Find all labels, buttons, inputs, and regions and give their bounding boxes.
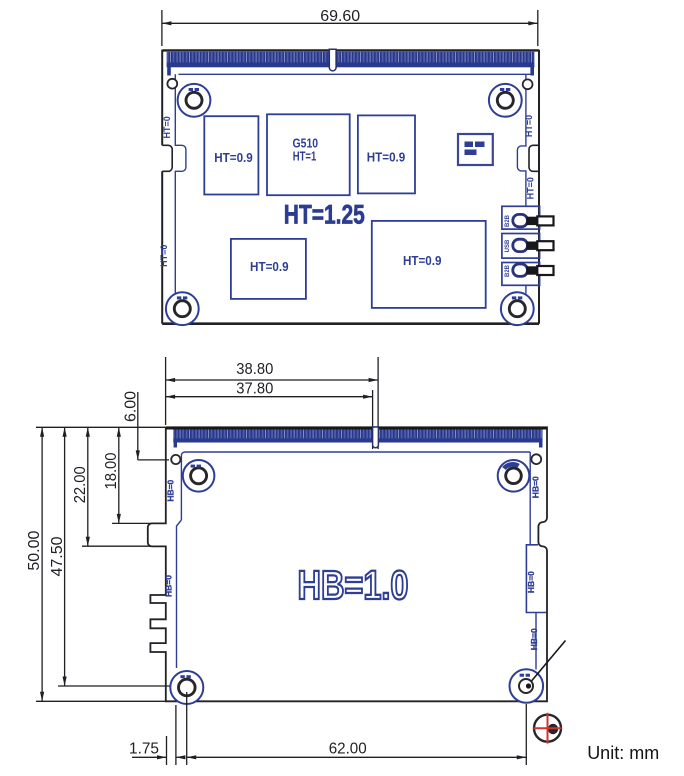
svg-text:18.00: 18.00 [103, 452, 120, 489]
svg-text:1.75: 1.75 [129, 741, 159, 758]
svg-text:HT=1: HT=1 [293, 148, 317, 163]
svg-text:HT=0.9: HT=0.9 [214, 150, 253, 165]
svg-text:B2B: B2B [505, 214, 511, 227]
svg-text:HB=0: HB=0 [531, 476, 541, 498]
svg-text:USB: USB [505, 239, 511, 252]
svg-text:HT=0.9: HT=0.9 [250, 259, 289, 274]
svg-text:47.50: 47.50 [49, 536, 66, 576]
svg-text:HT=0.9: HT=0.9 [403, 253, 442, 268]
svg-text:50.00: 50.00 [26, 531, 43, 571]
svg-text:HB=1.0: HB=1.0 [298, 562, 409, 608]
svg-text:Unit: mm: Unit: mm [587, 743, 659, 763]
svg-text:37.80: 37.80 [236, 381, 273, 398]
svg-text:HB=0: HB=0 [529, 628, 539, 650]
svg-text:HT=0.9: HT=0.9 [367, 150, 406, 165]
svg-text:HT=0: HT=0 [162, 116, 172, 138]
svg-text:B2B: B2B [505, 264, 511, 277]
svg-text:69.60: 69.60 [320, 8, 360, 25]
svg-text:HT=0: HT=0 [525, 177, 535, 199]
svg-text:HB=0: HB=0 [164, 575, 174, 597]
svg-text:HT=0: HT=0 [159, 245, 169, 267]
svg-text:HT=1.25: HT=1.25 [284, 199, 365, 229]
svg-text:62.00: 62.00 [329, 741, 367, 758]
svg-text:HB=0: HB=0 [526, 571, 536, 593]
svg-text:6.00: 6.00 [123, 391, 140, 422]
svg-text:HT=0: HT=0 [524, 115, 534, 137]
svg-text:22.00: 22.00 [72, 466, 89, 503]
svg-text:HB=0: HB=0 [166, 479, 176, 501]
svg-text:38.80: 38.80 [236, 361, 273, 378]
